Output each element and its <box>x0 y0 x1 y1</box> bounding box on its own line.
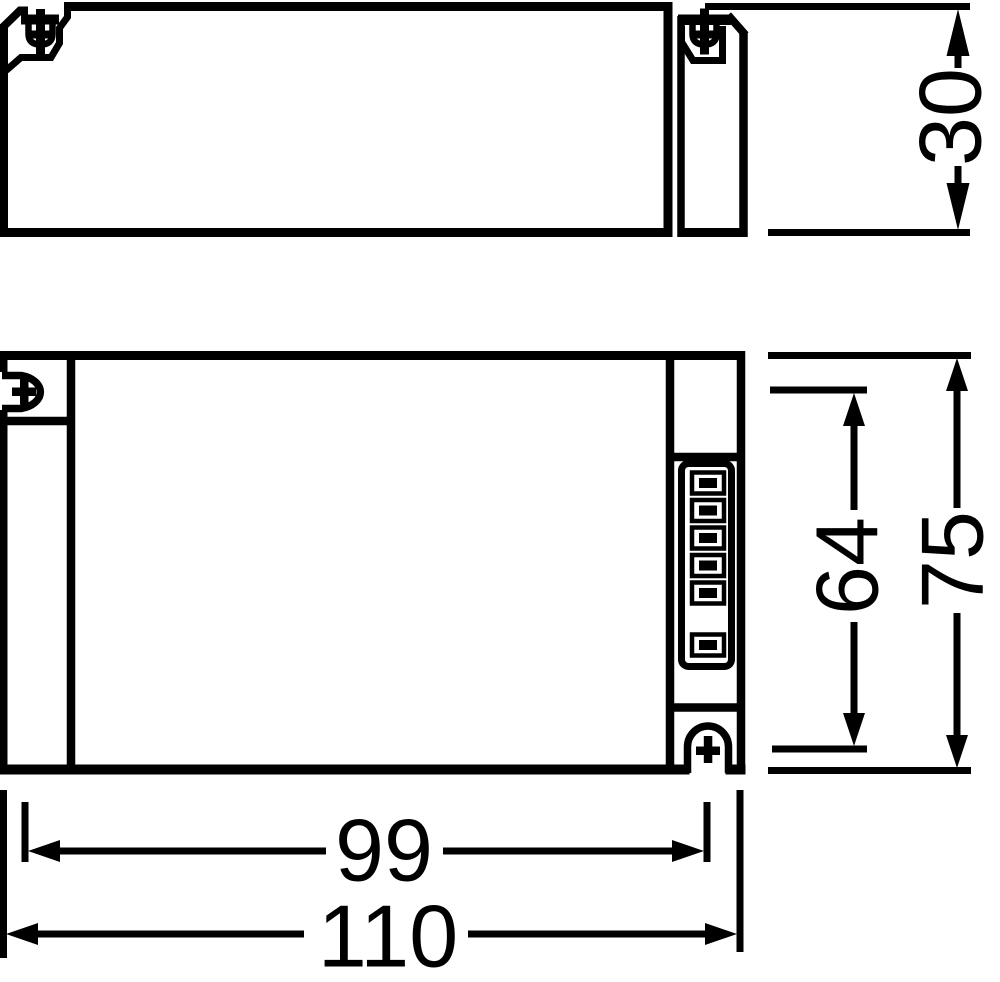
mounting-screw-slot-icon <box>688 726 729 773</box>
dimension-label-30: 30 <box>901 68 1000 166</box>
dimension-label-64: 64 <box>798 517 897 615</box>
mounting-screw-slot-icon <box>2 376 40 409</box>
terminal-slot <box>692 528 724 549</box>
arrow-up-icon <box>946 358 968 391</box>
arrow-left-icon <box>6 923 38 945</box>
arrow-up-icon <box>843 393 865 426</box>
terminal-slot <box>692 555 724 576</box>
arrow-down-icon <box>947 183 970 230</box>
terminal-slot <box>692 583 724 604</box>
arrow-down-icon <box>843 713 865 746</box>
arrow-right-icon <box>705 923 737 945</box>
top-view-left-compartment <box>0 355 71 769</box>
terminal-slot <box>692 500 724 521</box>
terminal-slot <box>692 635 724 656</box>
dimension-drawing: 30 <box>0 0 1000 982</box>
dimension-30: 30 <box>705 7 1000 233</box>
dimension-99: 99 <box>25 801 707 900</box>
arrow-down-icon <box>946 735 968 768</box>
arrow-right-icon <box>672 840 704 862</box>
side-view-mounting-tab <box>678 15 748 238</box>
dimension-label-110: 110 <box>318 887 458 982</box>
top-view <box>0 351 746 774</box>
top-view-outline <box>0 351 746 774</box>
terminal-slot <box>692 473 724 494</box>
dimension-64: 64 <box>770 390 897 749</box>
dimension-drawing-canvas: 30 <box>0 0 1000 982</box>
arrow-up-icon <box>947 9 970 56</box>
dimension-label-99: 99 <box>335 801 433 900</box>
terminal-block <box>682 464 732 667</box>
side-view-body-outline <box>0 2 672 237</box>
side-view <box>0 2 748 237</box>
arrow-left-icon <box>28 840 60 862</box>
dimension-label-75: 75 <box>903 511 1000 609</box>
